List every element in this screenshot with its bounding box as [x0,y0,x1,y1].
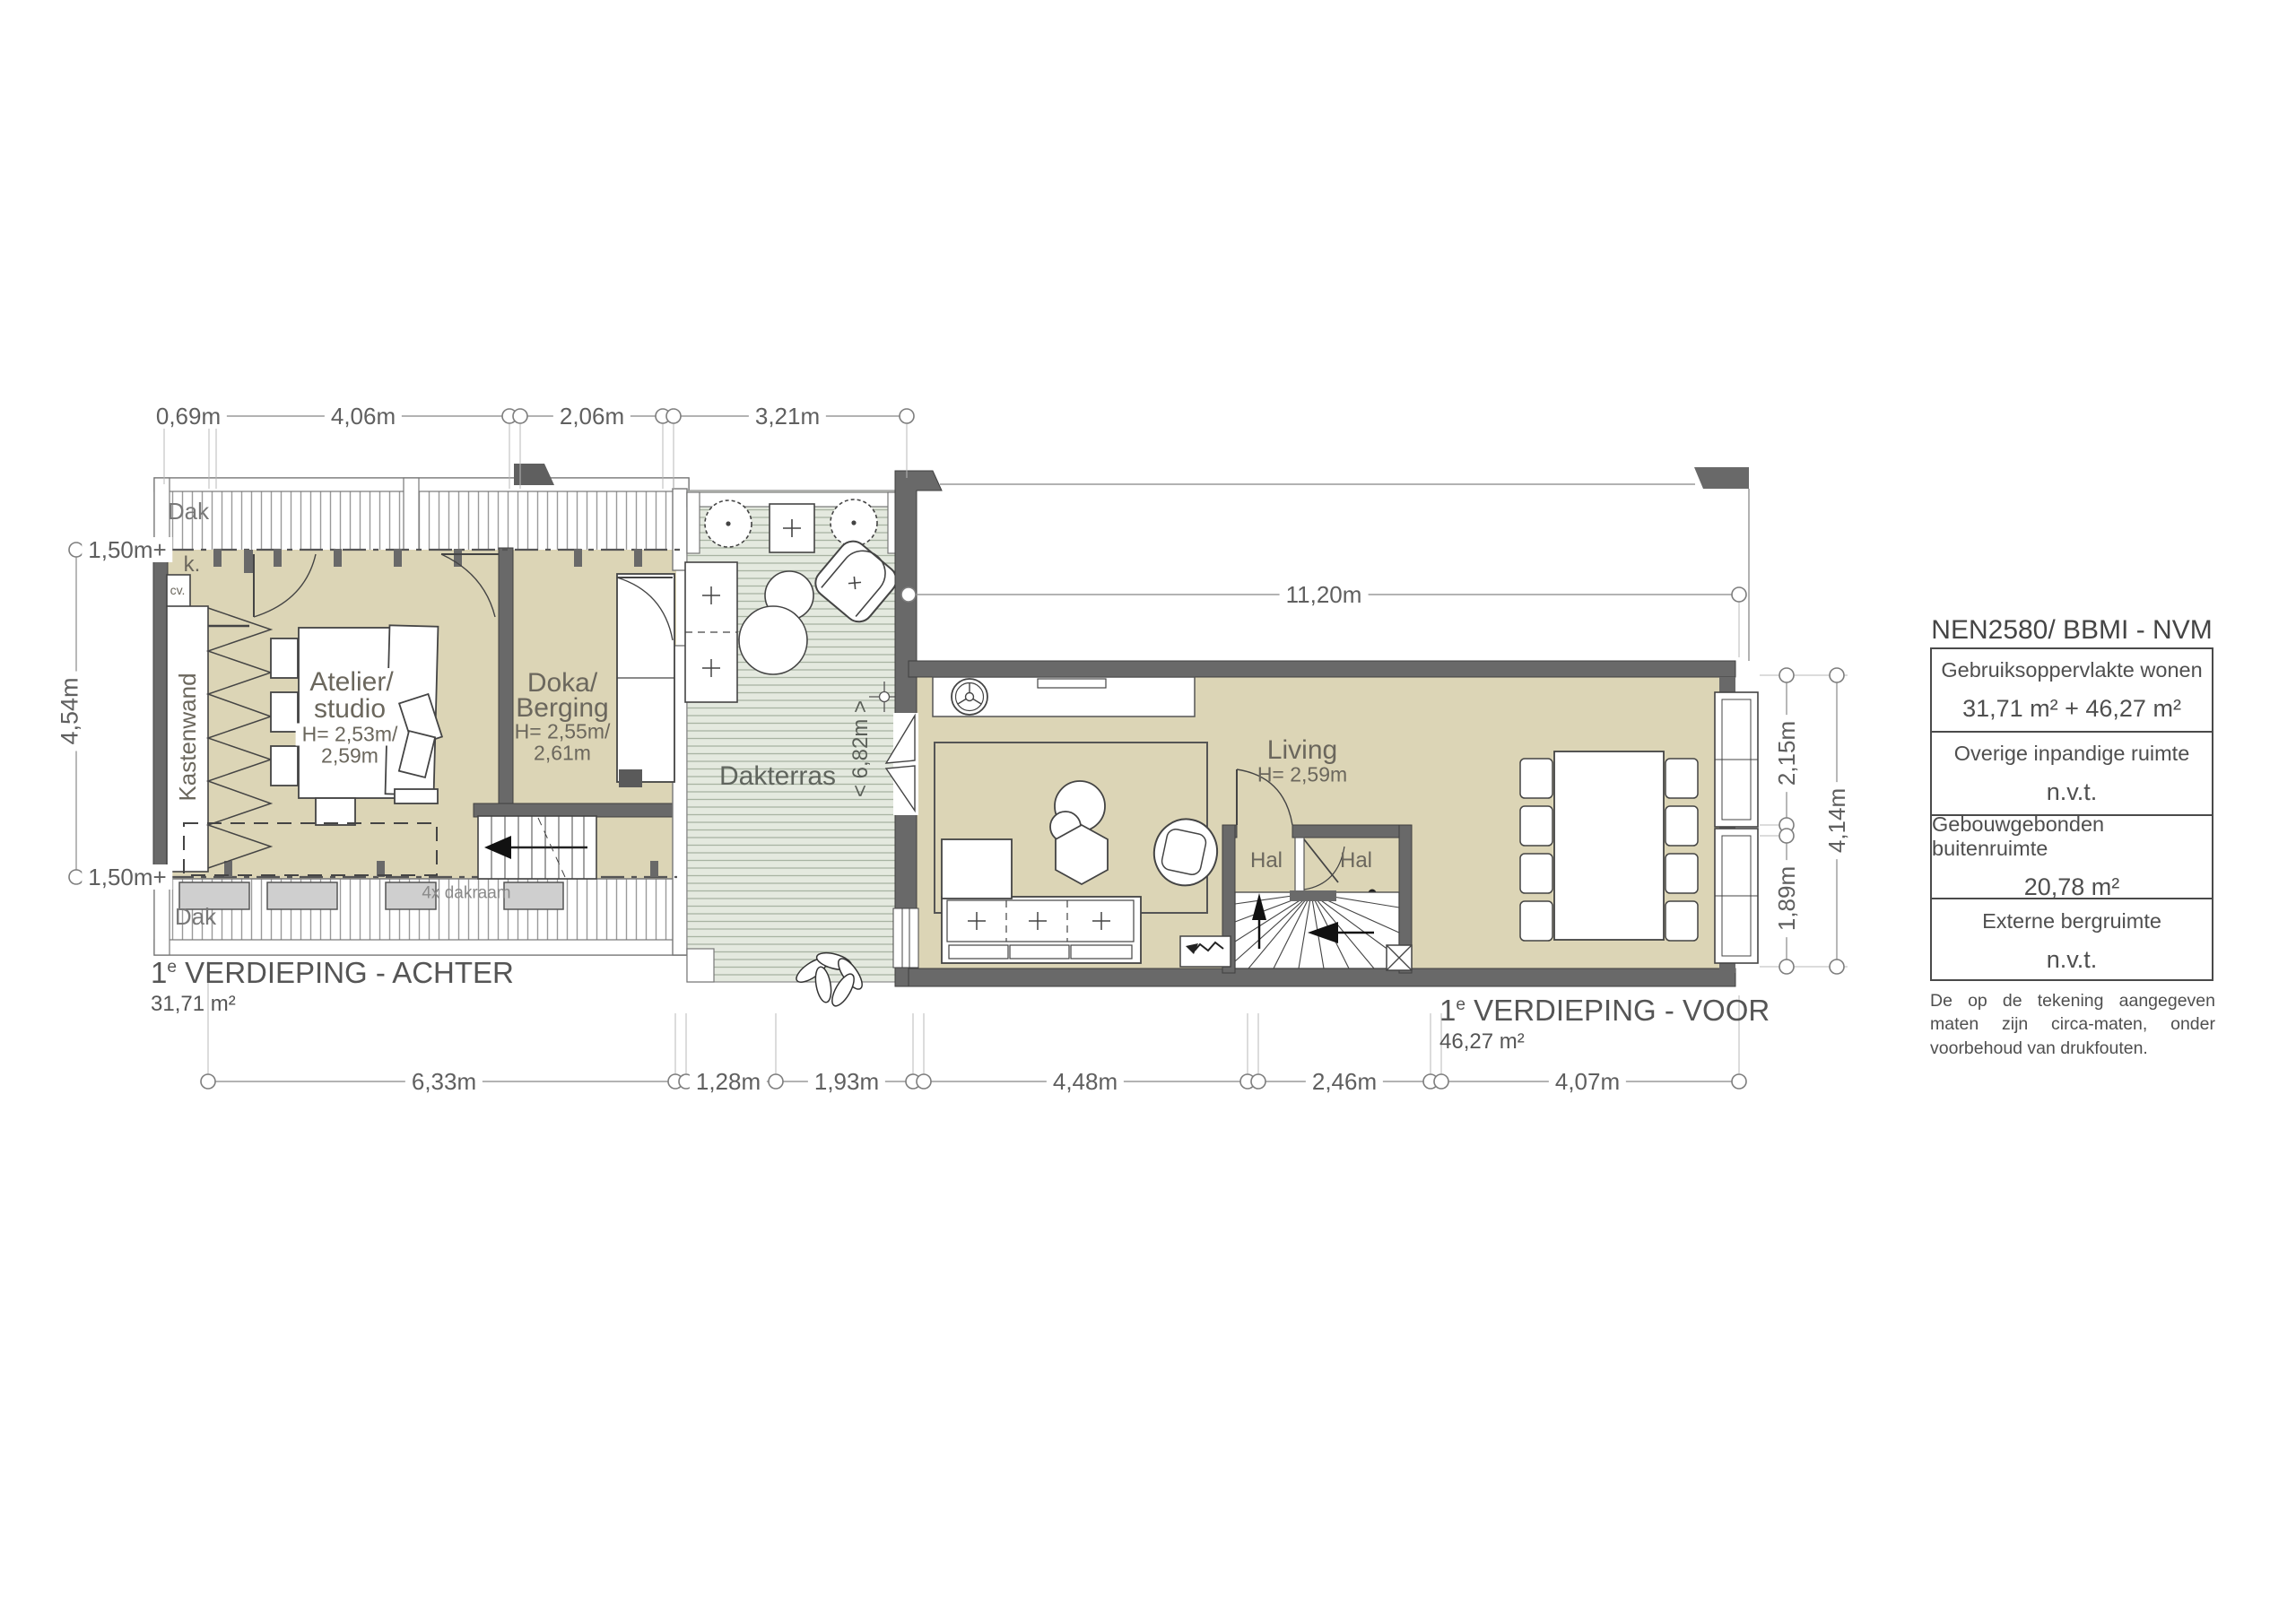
dining-set [1520,751,1698,941]
section-area-achter: 31,71 m² [151,994,236,1015]
stairs-achter [478,816,596,879]
legend-row-label: Gebouwgebonden buitenruimte [1932,812,2212,861]
dim-bottom-2: 1,28m [690,1069,767,1094]
floorplan-page: 0,69m 4,06m 2,06m 3,21m 11,20m < 6,82m >… [0,0,2296,1624]
dim-left-top: 1,50m+ [82,537,172,562]
sofa [942,897,1141,963]
section-area-voor: 46,27 m² [1439,1031,1525,1053]
dim-bottom-4: 4,48m [1047,1069,1124,1094]
terrace-corner-post [687,949,714,982]
label-dakterras: Dakterras [719,763,836,790]
roof-post [404,478,419,553]
dim-left-height: 4,54m [57,671,83,751]
wall-voor-top [909,661,1735,677]
dim-bottom-1: 6,33m [405,1069,483,1094]
window-front-top [1715,692,1758,827]
label-closet-k: k. [184,554,201,576]
terrace-table [770,504,814,552]
entry-step-box [1180,936,1231,967]
legend-row-value: 31,71 m² + 46,27 m² [1962,695,2181,723]
dim-right-bottom: 1,89m [1774,860,1799,937]
dim-right-total: 4,14m [1824,782,1849,859]
label-kastenwand: Kastenwand [176,673,199,801]
stair-landing-edge [1290,890,1336,901]
legend-row-value: n.v.t. [2047,946,2098,974]
label-atelier-1: Atelier/ [303,668,399,697]
section-voor-name: VERDIEPING - VOOR [1465,994,1770,1027]
voor-block [886,467,1758,986]
window-front-bottom [1715,829,1758,963]
roof-edge-bottom [154,940,689,955]
terrace-window [893,908,918,968]
dim-top-1: 0,69m [150,404,227,429]
legend-title: NEN2580/ BBMI - NVM [1931,617,2212,644]
roof-void [917,484,1749,661]
label-hal-right: Hal [1340,850,1372,872]
section-achter-num: 1 [151,956,167,989]
label-atelier-h1: H= 2,53m/ [296,724,404,746]
stairs-voor [1235,890,1399,968]
dim-bottom-3: 1,93m [808,1069,885,1094]
legend-disclaimer: De op de tekening aangegeven maten zijn … [1930,989,2215,1060]
shaft-box [1387,945,1412,970]
legend-row-label: Gebruiksoppervlakte wonen [1941,658,2202,682]
dim-top-4: 3,21m [749,404,826,429]
dim-bottom-6: 4,07m [1549,1069,1626,1094]
legend-row-value: n.v.t. [2047,778,2098,806]
legend-row-label: Overige inpandige ruimte [1954,742,2190,766]
section-title-achter: 1e VERDIEPING - ACHTER [151,958,514,987]
dim-right-top: 2,15m [1774,715,1799,792]
section-voor-num: 1 [1439,994,1456,1027]
terrace-bench [685,562,737,702]
dim-top-2: 4,06m [325,404,402,429]
label-doka-h2: 2,61m [534,743,591,764]
label-dak-top: Dak [168,499,209,523]
label-hal-left: Hal [1250,850,1283,872]
label-doka-h1: H= 2,55m/ [515,722,611,743]
dim-left-bottom: 1,50m+ [82,864,172,890]
legend-row-label: Externe bergruimte [1982,909,2161,934]
wall-doka-bottom [474,803,677,817]
wall-doka-left [499,548,513,817]
doka-cabinet [617,574,674,787]
chimney [1694,467,1749,489]
roof-edge-top [154,478,689,491]
ventilation-unit-icon [952,679,987,715]
section-achter-sup: e [167,958,177,977]
wall-voor-bottom [909,968,1735,986]
label-doka-2: Berging [516,695,608,722]
dim-terrace-width: < 6,82m > [850,700,872,797]
label-atelier-2: studio [308,695,392,724]
legend-row: Gebouwgebonden buitenruimte 20,78 m² [1932,816,2212,899]
dim-top-3: 2,06m [553,404,631,429]
wall-achter-right [673,489,687,570]
legend-row: Gebruiksoppervlakte wonen 31,71 m² + 46,… [1932,649,2212,733]
legend-row-value: 20,78 m² [2024,873,2120,901]
label-atelier-h2: 2,59m [315,745,385,768]
wall-achter-left [153,548,168,880]
label-living: Living [1267,737,1337,764]
label-dakraam: 4x dakraam [422,885,510,902]
dim-span: 11,20m [1280,582,1369,607]
label-cv: cv. [170,584,186,596]
legend-row: Overige inpandige ruimte n.v.t. [1932,733,2212,816]
section-title-voor: 1e VERDIEPING - VOOR [1439,995,1770,1025]
dim-bottom-5: 2,46m [1306,1069,1383,1094]
section-achter-name: VERDIEPING - ACHTER [177,956,514,989]
terrace-pot [739,606,807,674]
atelier-desk [386,625,442,803]
legend-table: Gebruiksoppervlakte wonen 31,71 m² + 46,… [1930,647,2213,981]
section-voor-sup: e [1456,995,1465,1014]
label-dak-bottom: Dak [175,905,216,928]
planter-frame [687,492,700,553]
side-table [942,839,1012,899]
legend-row: Externe bergruimte n.v.t. [1932,899,2212,983]
label-living-h: H= 2,59m [1257,765,1347,786]
